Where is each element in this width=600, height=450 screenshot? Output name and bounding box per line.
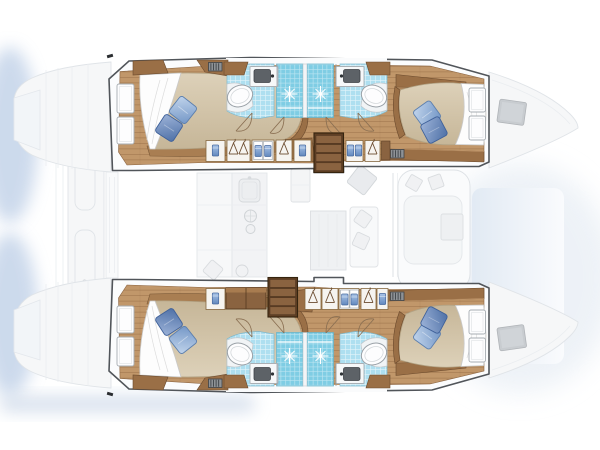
bath-cabinet — [366, 62, 390, 75]
vanity-sink — [344, 70, 361, 83]
seat — [347, 165, 378, 196]
towel-icon — [347, 145, 353, 156]
faucet-icon — [340, 74, 343, 77]
towel-icon — [379, 294, 385, 305]
transom-steps — [14, 90, 40, 150]
towel-icon — [351, 294, 357, 305]
vanity-sink — [254, 70, 271, 83]
floorplan-svg — [0, 0, 600, 450]
sofa-bench — [350, 207, 378, 267]
bow-ghost — [489, 72, 578, 168]
towel-icon — [265, 146, 271, 157]
companionway-steps — [314, 133, 344, 173]
towel-icon — [255, 146, 261, 157]
towel-icon — [355, 145, 361, 156]
forward-cockpit-table — [441, 214, 463, 240]
bath-cabinet — [224, 62, 248, 75]
vent-grille-icon — [209, 63, 223, 72]
hull-shadow — [0, 396, 255, 412]
faucet-icon — [271, 74, 274, 77]
cleat-icon — [107, 54, 114, 58]
companionway-steps — [268, 278, 298, 318]
vent-grille-icon — [391, 150, 405, 159]
bow-window — [497, 99, 527, 126]
shelf — [382, 141, 391, 160]
fridge — [291, 169, 310, 202]
galley — [197, 173, 267, 281]
wood-cabinets — [226, 288, 266, 309]
corner-cabinet — [133, 60, 168, 75]
towel-icon — [342, 294, 348, 305]
towel-icon — [299, 145, 305, 156]
floorplan-stage — [0, 0, 600, 450]
towel-icon — [212, 293, 218, 304]
faucet-icon — [248, 176, 252, 180]
forward-cockpit — [398, 170, 470, 290]
aft-door-wall — [106, 172, 118, 278]
towel-icon — [212, 145, 218, 156]
